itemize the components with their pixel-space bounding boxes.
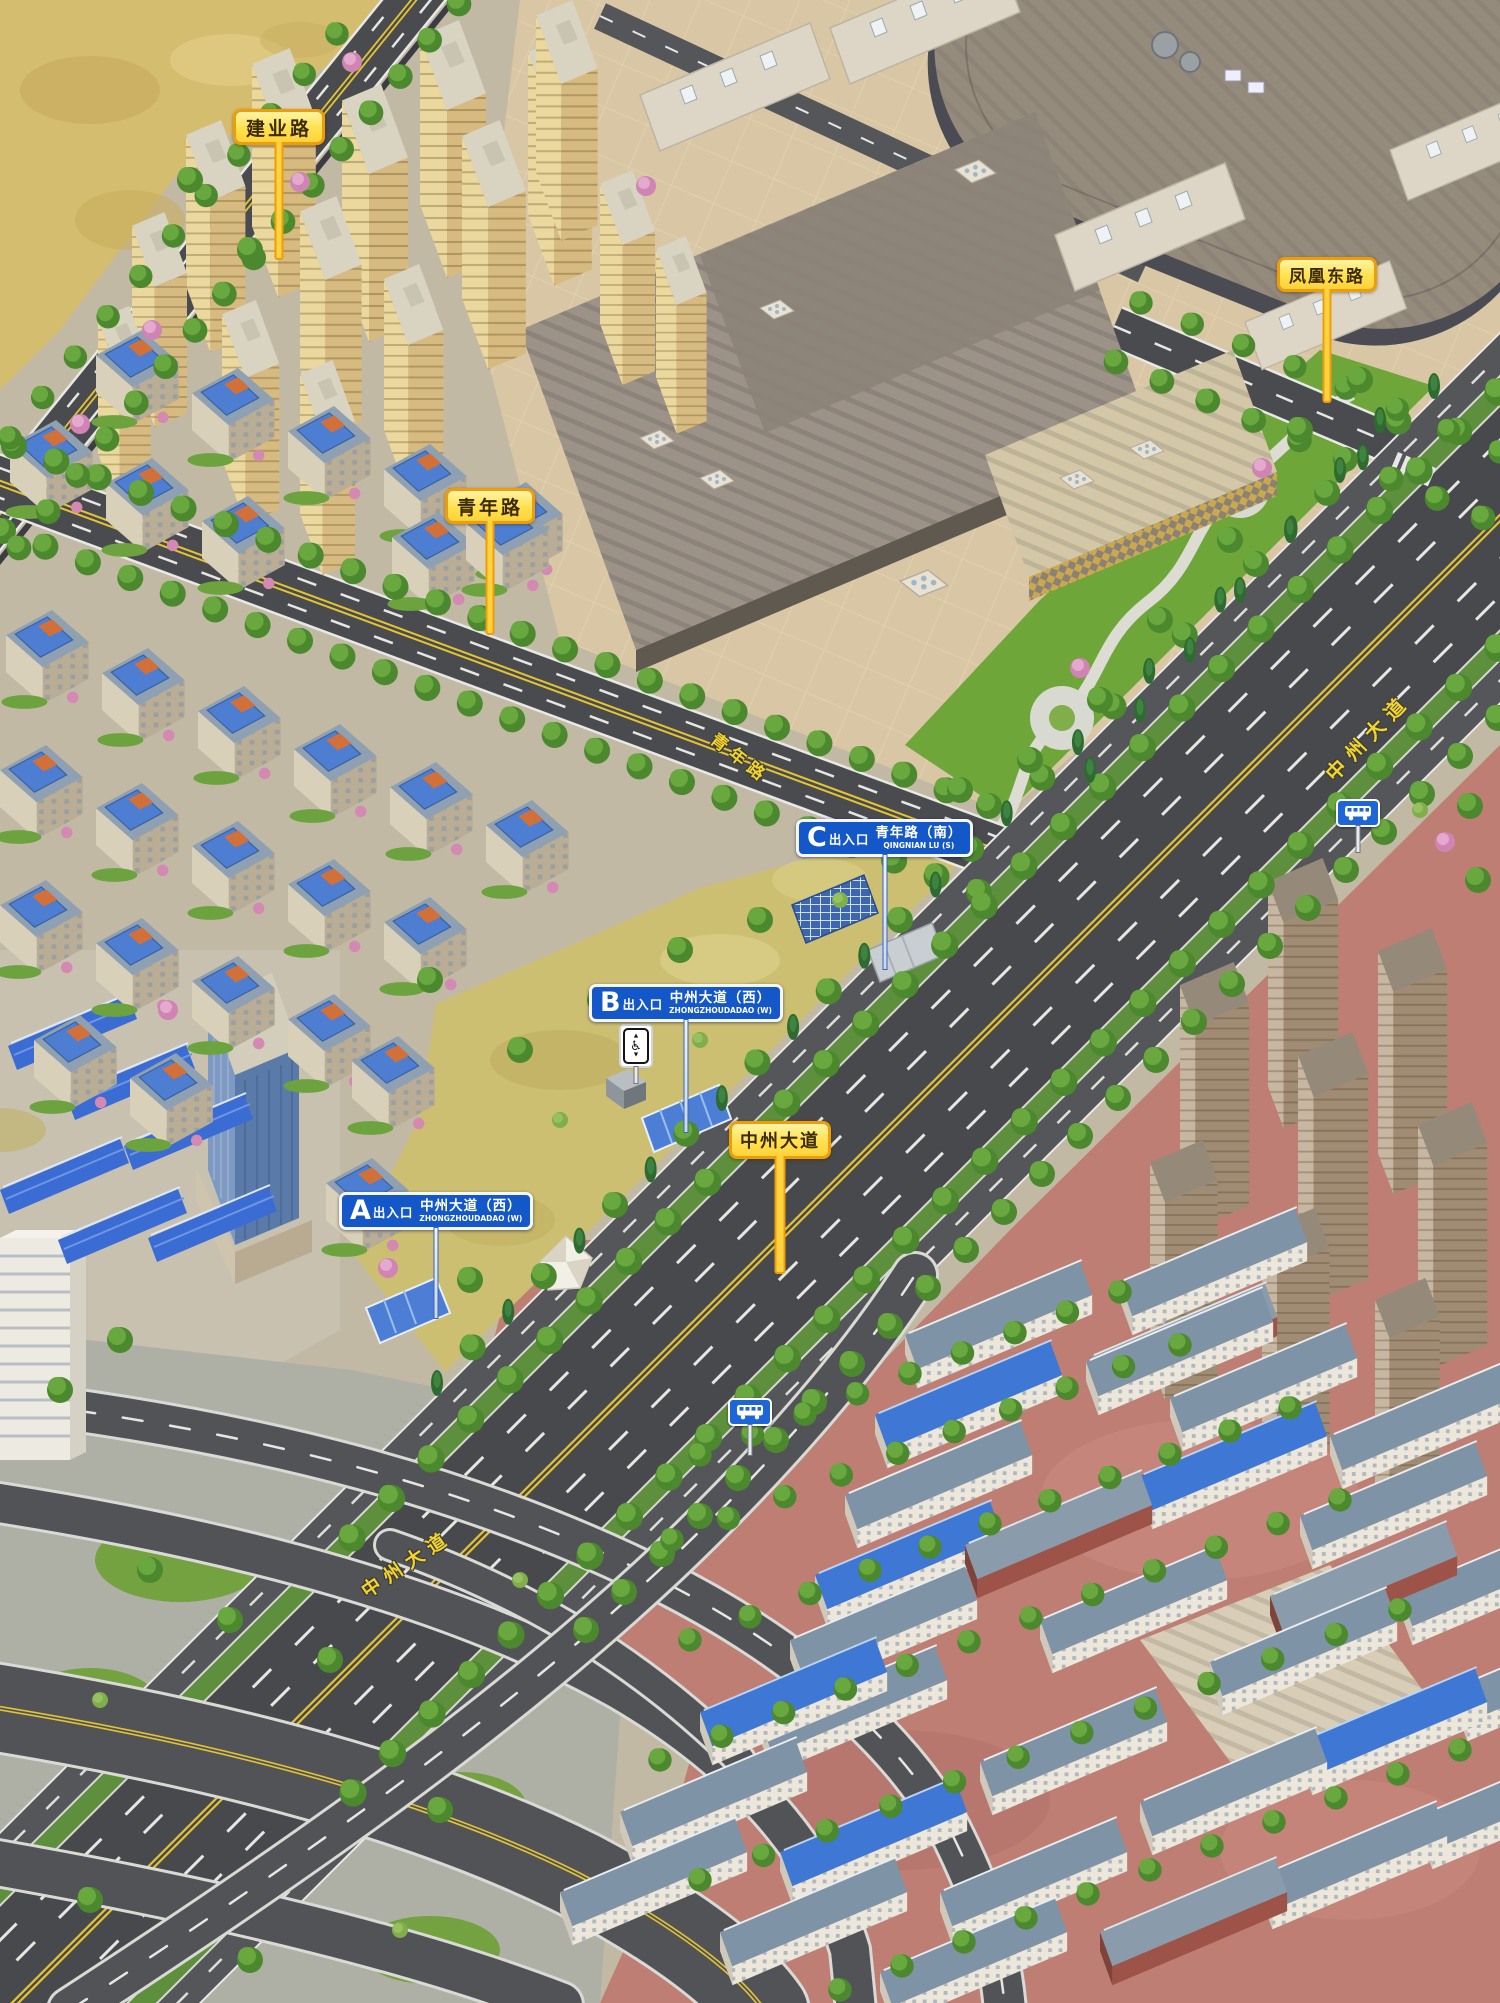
- exit-road-name-en: ZHONGZHOUDADAO (W): [419, 1215, 522, 1223]
- metro-exit-sign-c[interactable]: C 出入口 青年路（南） QINGNIAN LU (S): [796, 819, 973, 857]
- sign-pole: [1323, 289, 1332, 403]
- exit-letter: C: [807, 824, 827, 851]
- sign-pole: [684, 1019, 689, 1133]
- road-sign-label: 建业路: [246, 114, 312, 141]
- city-map: 青年路 中州大道 中州大道 建业路 青年路 凤凰东路 中州大道 C 出入口 青年…: [0, 0, 1500, 2003]
- accessible-elevator-sign[interactable]: ▲ ♿ ▼: [621, 1026, 651, 1066]
- exit-road-name-cn: 中州大道（西）: [420, 1198, 522, 1215]
- bus-stop-sign-north[interactable]: [1336, 799, 1380, 827]
- exit-road-name-cn: 中州大道（西）: [670, 990, 772, 1007]
- exit-letter: A: [350, 1197, 371, 1224]
- sign-pole: [775, 1156, 786, 1274]
- exit-letter: B: [600, 989, 621, 1016]
- down-arrow-icon: ▼: [634, 1053, 638, 1059]
- road-sign-label: 凤凰东路: [1289, 262, 1365, 287]
- sign-pole: [434, 1227, 439, 1319]
- sign-pole: [1356, 825, 1361, 853]
- bus-icon: [736, 1404, 764, 1420]
- metro-exit-sign-a[interactable]: A 出入口 中州大道（西） ZHONGZHOUDADAO (W): [339, 1192, 533, 1230]
- road-sign-label: 青年路: [457, 493, 523, 520]
- sign-pole: [275, 142, 284, 260]
- exit-entrance-label: 出入口: [829, 829, 870, 848]
- road-sign-fenghuangdonglu[interactable]: 凤凰东路: [1277, 257, 1377, 292]
- exit-road-name-en: ZHONGZHOUDADAO (W): [669, 1007, 772, 1015]
- metro-exit-sign-b[interactable]: B 出入口 中州大道（西） ZHONGZHOUDADAO (W): [589, 984, 783, 1022]
- wheelchair-icon: ♿: [630, 1040, 642, 1053]
- road-sign-label: 中州大道: [740, 1127, 820, 1153]
- exit-road-name-en: QINGNIAN LU (S): [883, 842, 954, 850]
- white-tower: [0, 1230, 86, 1460]
- exit-entrance-label: 出入口: [623, 994, 664, 1013]
- exit-entrance-label: 出入口: [373, 1202, 414, 1221]
- bus-stop-sign-south[interactable]: [728, 1398, 772, 1426]
- elevator-sign-frame: ▲ ♿ ▼: [623, 1028, 649, 1064]
- sign-pole: [634, 1066, 639, 1084]
- exit-road-name-cn: 青年路（南）: [875, 825, 962, 842]
- road-sign-jianyelu[interactable]: 建业路: [233, 109, 325, 145]
- sign-pole: [486, 521, 495, 635]
- road-sign-zhongzhoudadao[interactable]: 中州大道: [729, 1121, 831, 1159]
- sign-pole: [748, 1424, 753, 1456]
- sign-pole: [882, 854, 887, 970]
- bus-icon: [1344, 805, 1372, 821]
- road-sign-qingnianlu[interactable]: 青年路: [445, 488, 535, 524]
